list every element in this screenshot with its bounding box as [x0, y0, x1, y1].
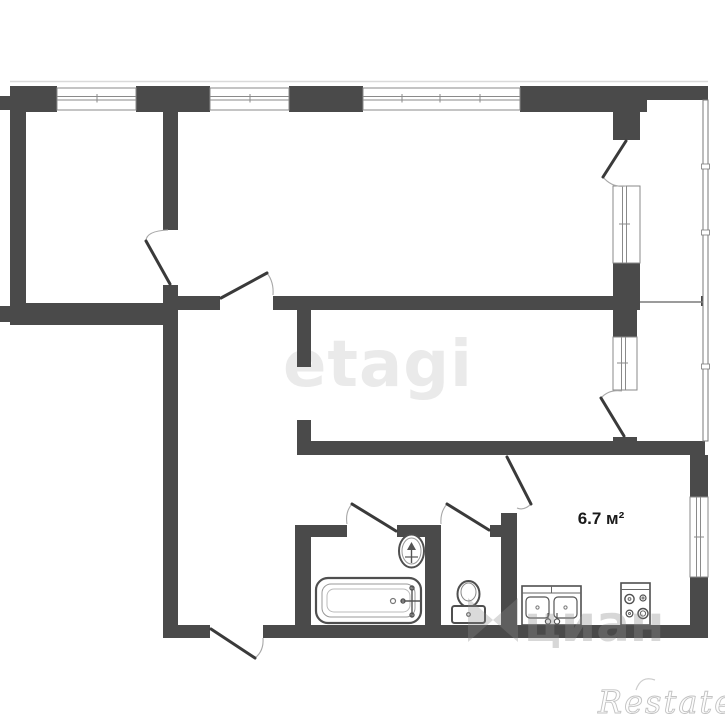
bath-sink	[399, 535, 424, 568]
wall-bath-wc-divider	[425, 525, 441, 638]
balcony-railing	[703, 100, 708, 441]
bathtub	[316, 578, 421, 623]
watermark-cian-text: циан	[524, 595, 664, 653]
wall-kitchen-right-bottom	[690, 577, 708, 638]
railing-tick-1	[702, 164, 710, 169]
wall-room2-right-top	[613, 310, 637, 337]
wall-stub-bottom	[0, 306, 12, 322]
wall-bigroom-right-bottom	[613, 263, 640, 296]
wall-bathroom-left	[295, 525, 311, 638]
window-room2	[613, 337, 637, 390]
window-bigroom-1	[210, 88, 289, 110]
watermark-restate-text: Restate	[597, 683, 725, 721]
wall-bathroom-top	[295, 525, 347, 537]
window-balcony-bigroom	[613, 186, 640, 263]
wall-room2-right-block	[613, 437, 637, 455]
wall-divider-upper	[163, 112, 178, 230]
wall-kitchen-top	[297, 441, 705, 455]
wall-kitchen-right-top	[690, 455, 708, 497]
wall-bigroom-bottom-left	[178, 296, 220, 310]
kitchen-area-label: 6.7 м²	[578, 509, 625, 528]
wall-hall-left	[163, 285, 178, 638]
wall-leftroom-bottom	[10, 303, 178, 325]
wall-bottom-left	[163, 625, 210, 638]
floor-plan: etagi	[0, 0, 725, 725]
floor-plan-svg: etagi	[0, 0, 725, 725]
window-bigroom-2	[363, 88, 520, 110]
watermark-etagi: etagi	[283, 328, 473, 402]
window-kitchen	[690, 497, 708, 577]
wall-bigroom-bottom-right	[273, 296, 640, 310]
wall-stub-top	[0, 96, 12, 110]
wall-top-3	[289, 86, 363, 112]
wall-wc-top-right	[490, 525, 501, 537]
wall-bigroom-right-top	[613, 100, 640, 140]
wall-top-2	[136, 86, 210, 112]
railing-tick-3	[702, 364, 710, 369]
wall-top-balcony	[640, 86, 708, 100]
wall-room2-left-upper	[297, 310, 311, 367]
watermark-restate: Restate	[597, 679, 725, 721]
window-left-room	[57, 88, 136, 110]
railing-tick-2	[702, 230, 710, 235]
wall-left	[10, 86, 26, 325]
